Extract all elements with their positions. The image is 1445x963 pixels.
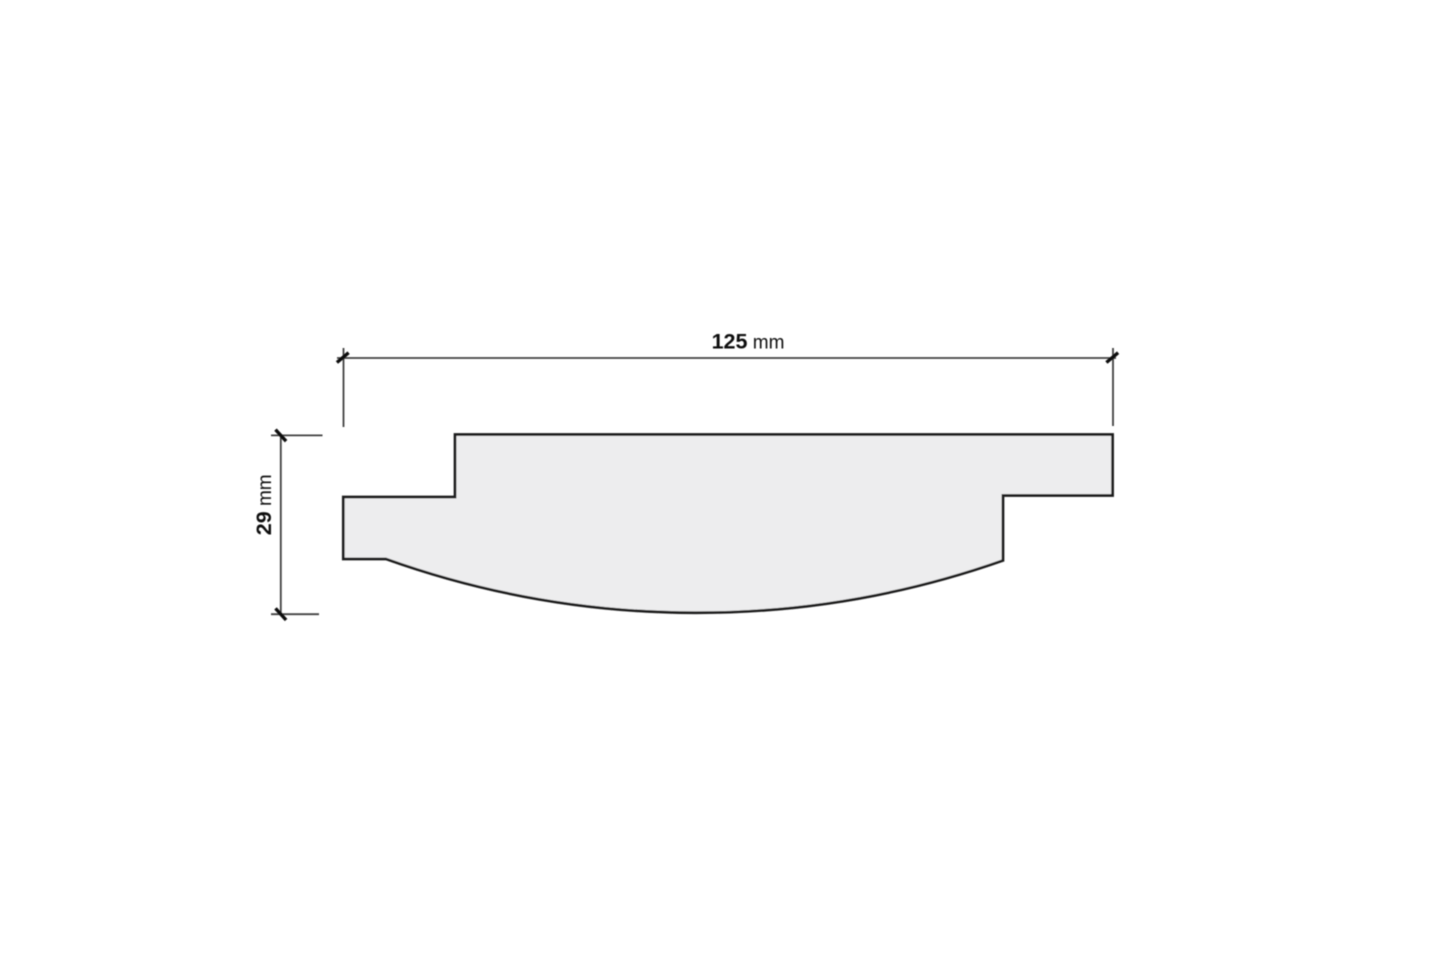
svg-text:125 mm: 125 mm	[712, 329, 785, 353]
svg-text:29 mm: 29 mm	[252, 474, 276, 535]
